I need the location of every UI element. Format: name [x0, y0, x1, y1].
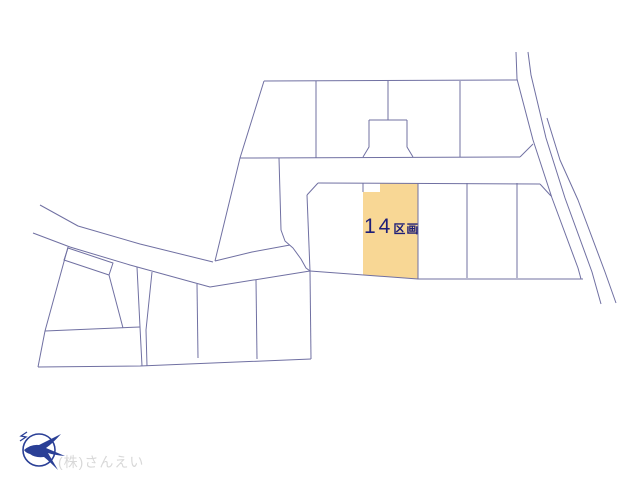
right-road-line-2 — [528, 52, 601, 304]
company-name: (株)さんえい — [58, 452, 144, 472]
flag-lot-right — [407, 120, 413, 157]
lower-block-divider-1 — [197, 284, 198, 358]
middle-block-left-chamfer — [307, 183, 318, 195]
top-block-corner-chamfer — [520, 144, 533, 157]
lower-block-strip-left — [137, 267, 142, 366]
parcel-number: 14 — [364, 215, 393, 239]
right-road-line-1 — [516, 52, 581, 279]
top-block-top-edge — [264, 80, 517, 81]
top-block-bottom-edge — [240, 157, 520, 158]
highlighted-parcel-label: 14区画 — [364, 215, 419, 239]
plot-map — [0, 0, 640, 480]
lower-block-diagonal — [109, 275, 123, 328]
middle-block-top-edge — [318, 183, 540, 184]
wedge-boundary — [215, 245, 290, 261]
lower-block-right-edge — [310, 271, 311, 359]
middle-block-left-edge — [307, 195, 310, 271]
connector-road-edge — [279, 158, 310, 271]
right-road-line-3 — [547, 118, 616, 303]
parcel-suffix: 区画 — [393, 220, 419, 237]
lower-block-inner-horizontal — [45, 327, 140, 331]
lower-block-left-edge — [38, 247, 68, 367]
top-block-left-edge — [215, 81, 264, 261]
plot-map-page: 14区画 (株)さんえい — [0, 0, 640, 480]
left-road-lower-edge — [33, 233, 310, 287]
lower-block-bottom-edge — [38, 359, 311, 367]
middle-block-bottom-edge — [310, 271, 583, 279]
flag-lot-left — [363, 120, 369, 157]
lower-block-strip-right — [146, 272, 152, 366]
lower-block-divider-2 — [256, 280, 257, 359]
